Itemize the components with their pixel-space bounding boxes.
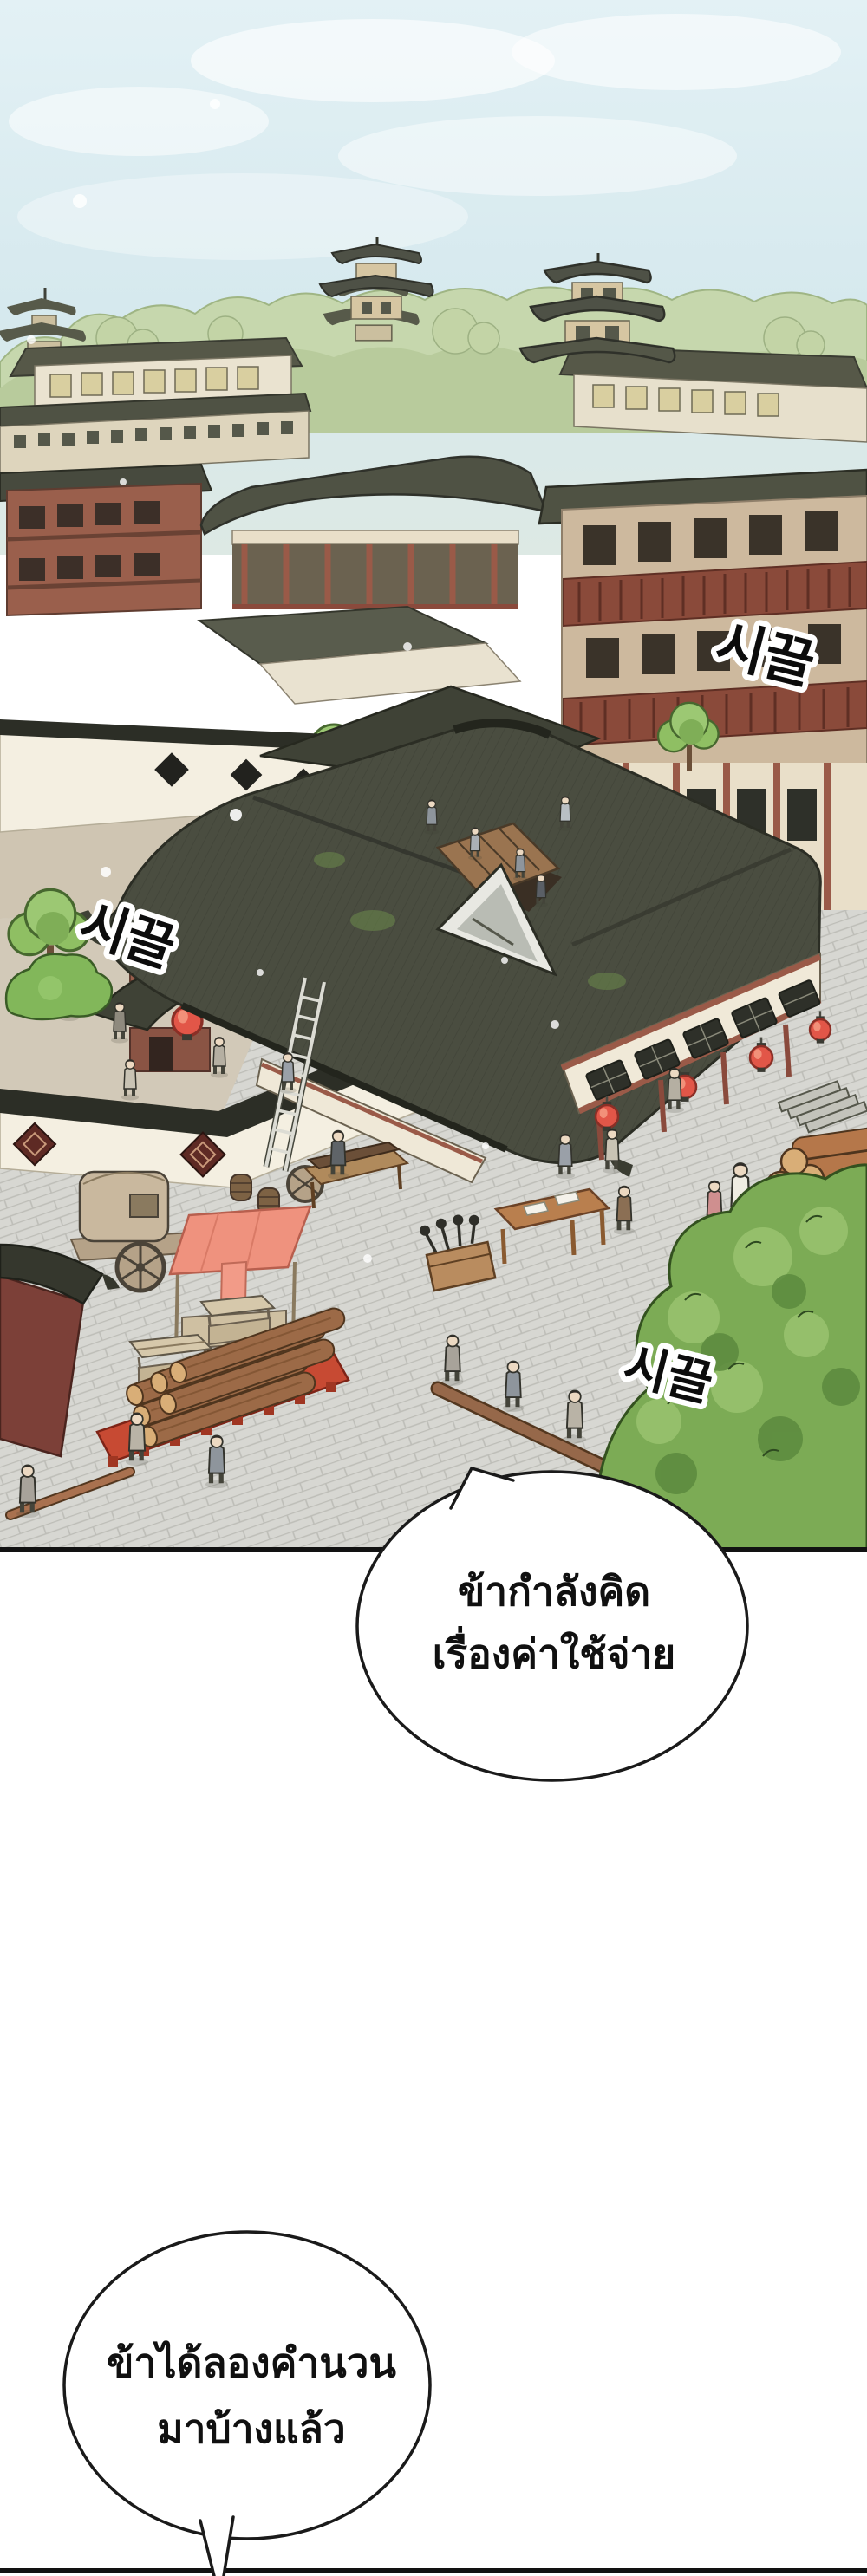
comic-page-artwork: 시끌 시끌 시끌 ข้ากำลังคิด เรื่องค่าใช้จ่าย ข้… — [0, 0, 867, 2576]
mid-building-band — [0, 457, 546, 704]
bubble-2-line-2: มาบ้างแล้ว — [157, 2405, 345, 2452]
bubble-1-line-2: เรื่องค่าใช้จ่าย — [433, 1626, 676, 1677]
next-panel-border — [0, 2568, 867, 2573]
speech-bubble-2: ข้าได้ลองคำนวน มาบ้างแล้ว — [64, 2232, 430, 2576]
comic-page: 시끌 시끌 시끌 ข้ากำลังคิด เรื่องค่าใช้จ่าย ข้… — [0, 0, 867, 2576]
bubble-1-line-1: ข้ากำลังคิด — [458, 1568, 650, 1615]
village-scene-panel: 시끌 시끌 시끌 — [0, 0, 867, 1552]
bubble-2-line-1: ข้าได้ลองคำนวน — [107, 2339, 396, 2386]
